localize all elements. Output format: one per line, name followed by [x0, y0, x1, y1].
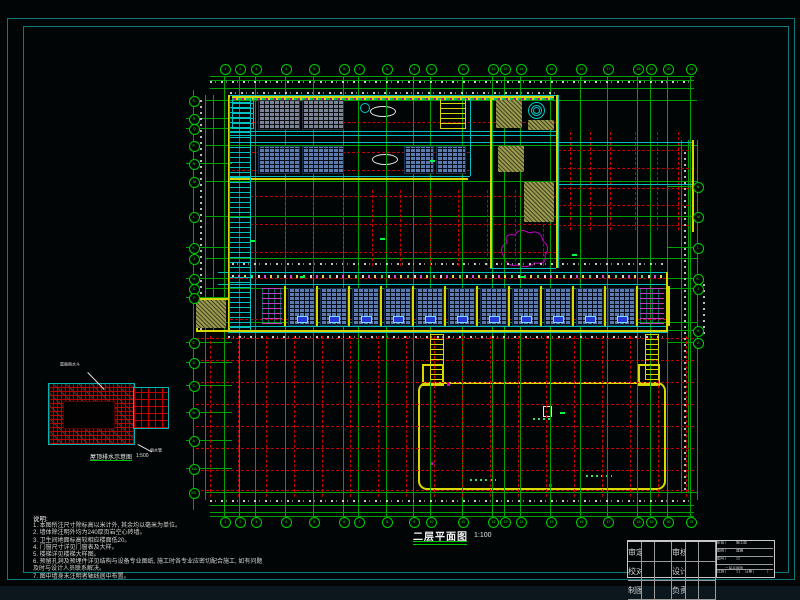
grid-axis-bubble: N — [189, 159, 200, 170]
layout-grid-red — [196, 338, 694, 339]
wall-line — [232, 96, 554, 98]
window-line — [230, 142, 694, 143]
annotation-mark — [560, 412, 565, 414]
partition-wall — [444, 286, 446, 326]
drawing-title-scale: 1:100 — [474, 532, 492, 539]
grid-axis-bubble: 10 — [426, 517, 437, 528]
grid-axis-bubble: 18 — [633, 64, 644, 75]
grid-axis-bubble: 8 — [382, 64, 393, 75]
grid-axis-bubble: 21 — [686, 64, 697, 75]
partition-wall — [572, 286, 574, 326]
drain-symbol-icon — [360, 103, 370, 113]
window-line — [558, 95, 559, 268]
axis-label: 9 — [413, 67, 415, 71]
stairwell — [440, 99, 466, 129]
grid-axis-bubble: 6 — [339, 64, 350, 75]
axis-label: 18 — [636, 67, 640, 71]
layout-grid-red — [196, 490, 694, 491]
axis-label: 21 — [689, 67, 693, 71]
field-spacer — [655, 561, 672, 581]
layout-grid-red — [372, 190, 373, 266]
axis-label: 13 — [503, 520, 507, 524]
podium — [521, 316, 532, 323]
field-value — [642, 561, 655, 581]
grid-axis-bubble: 13 — [500, 517, 511, 528]
axis-label: 5 — [313, 67, 315, 71]
dimension-line — [213, 95, 214, 330]
classroom — [512, 288, 540, 326]
axis-label: 1 — [224, 520, 226, 524]
axis-label: G — [697, 341, 700, 345]
axis-label: G — [193, 287, 196, 291]
field-label: 图别 — [717, 549, 726, 552]
classroom — [288, 288, 316, 326]
axis-label: 16 — [579, 67, 583, 71]
grid-axis-bubble: J — [189, 254, 200, 265]
axis-label: 10 — [429, 67, 433, 71]
axis-label: J — [697, 287, 699, 291]
side-wing-windows — [229, 98, 251, 328]
field-spacer — [699, 542, 716, 562]
note-line: 及时与设计人员联系解决。 — [33, 566, 262, 573]
layout-grid-red — [250, 252, 556, 253]
furnished-room — [196, 300, 226, 328]
podium — [617, 316, 628, 323]
annotation-mark — [380, 238, 385, 240]
partition-wall — [284, 286, 286, 326]
classroom — [384, 288, 412, 326]
grid-axis-bubble: N — [693, 182, 704, 193]
grid-axis-bubble: 4 — [281, 64, 292, 75]
axis-label: 3 — [255, 67, 257, 71]
window-line — [230, 135, 558, 136]
podium — [425, 316, 436, 323]
layout-grid-red — [196, 470, 694, 471]
layout-grid-red — [400, 190, 401, 266]
field-label: 图号 — [717, 557, 726, 560]
podium — [361, 316, 372, 323]
axis-label: 6 — [343, 67, 345, 71]
stairwell — [262, 288, 282, 324]
axis-label: 5 — [313, 520, 315, 524]
layout-grid-red — [343, 190, 344, 266]
axis-label: M — [696, 215, 699, 219]
grid-axis-bubble: L — [189, 212, 200, 223]
drawing-title-underline — [413, 544, 467, 545]
field-label: 负责 — [672, 580, 686, 600]
layout-grid-red — [196, 426, 694, 427]
table-oval — [370, 106, 396, 117]
classroom — [352, 288, 380, 326]
axis-label: 14 — [519, 67, 523, 71]
layout-grid-red — [250, 224, 556, 225]
grid-axis-bubble: 18 — [633, 517, 644, 528]
grid-axis-bubble: 15 — [546, 64, 557, 75]
layout-grid-red — [590, 132, 591, 230]
classroom — [544, 288, 572, 326]
axis-label: E — [193, 341, 195, 345]
grid-axis-bubble: 7 — [354, 517, 365, 528]
link-bridge — [430, 334, 444, 380]
grid-line-vertical — [224, 76, 225, 516]
grid-axis-bubble: 10 — [426, 64, 437, 75]
grid-line-horizontal — [205, 258, 697, 259]
field-label: 校对 — [628, 561, 642, 581]
table-oval — [372, 154, 398, 165]
grid-axis-bubble: 11 — [458, 64, 469, 75]
window-line — [558, 184, 694, 185]
axis-line-right — [697, 140, 698, 500]
layout-grid-red — [250, 196, 556, 197]
dimension-text — [232, 263, 664, 265]
axis-label: 19 — [649, 67, 653, 71]
field-label: 审核 — [672, 542, 686, 562]
layout-grid-red — [635, 132, 636, 230]
axis-label: 2 — [239, 67, 241, 71]
partition-wall — [476, 286, 478, 326]
annotation-mark — [430, 160, 435, 162]
grid-axis-bubble: 1 — [220, 517, 231, 528]
key-plan-note-bottom: 雨水管 — [150, 448, 162, 453]
axis-label: 1 — [224, 67, 226, 71]
layout-grid-red — [313, 190, 314, 266]
layout-grid-red — [678, 132, 679, 230]
grid-axis-bubble: K — [189, 243, 200, 254]
classroom — [302, 146, 344, 174]
field-value — [686, 580, 699, 600]
axis-label: 6 — [343, 520, 345, 524]
axis-label: C — [193, 384, 196, 388]
dimension-line — [210, 88, 694, 89]
grid-axis-bubble: 8 — [382, 517, 393, 528]
grid-axis-bubble: 12 — [488, 64, 499, 75]
layout-grid-red — [610, 132, 611, 230]
grid-axis-bubble: F — [189, 293, 200, 304]
layout-grid-red — [487, 190, 488, 266]
axis-label: 17 — [606, 67, 610, 71]
axis-label: 20 — [666, 520, 670, 524]
axis-label: 8 — [386, 520, 388, 524]
title-block-left: 建 ××市建筑设计研究院有限公司 审定审核校对设计制图负责 — [628, 541, 717, 577]
grid-axis-bubble: 1 — [220, 64, 231, 75]
layout-grid-red — [558, 225, 694, 226]
partition-wall — [348, 286, 350, 326]
magenta-marker — [447, 383, 450, 386]
layout-grid-red — [430, 190, 431, 266]
lecture-room — [258, 100, 300, 130]
grid-axis-bubble: 14 — [516, 517, 527, 528]
signature-grid: 审定审核校对设计制图负责 — [628, 542, 716, 599]
grid-axis-bubble: 11 — [458, 517, 469, 528]
dimension-text-vertical — [200, 100, 202, 330]
dimension-text — [230, 92, 560, 94]
axis-label: H — [697, 329, 700, 333]
axis-label: 7 — [358, 520, 360, 524]
stairwell — [640, 288, 664, 324]
axis-label: 13 — [503, 67, 507, 71]
podium — [297, 316, 308, 323]
drawing-title-underline — [413, 541, 467, 542]
podium — [585, 316, 596, 323]
furnished-room — [496, 100, 522, 128]
field-label: 设计 — [672, 561, 686, 581]
spiral-stair-icon — [533, 107, 540, 114]
key-plan-scale: 1:500 — [136, 453, 149, 459]
partition-wall — [668, 286, 670, 326]
grid-axis-bubble: 15 — [546, 517, 557, 528]
field-value: 建施 — [736, 549, 753, 552]
axis-label: 15 — [549, 67, 553, 71]
axis-label: D — [193, 361, 196, 365]
axis-label: L — [697, 246, 699, 250]
grid-axis-bubble: 6 — [339, 517, 350, 528]
key-plan-note-top: 屋面雨水斗 — [60, 362, 80, 367]
classroom — [480, 288, 508, 326]
grid-axis-bubble: 2 — [235, 517, 246, 528]
field-value: 12 — [736, 557, 753, 560]
partition-wall — [604, 286, 606, 326]
axis-label: 12 — [491, 67, 495, 71]
grid-axis-bubble: 16 — [576, 517, 587, 528]
grid-axis-bubble: 3 — [251, 64, 262, 75]
axis-label: R — [193, 117, 196, 121]
grid-axis-bubble: C — [189, 381, 200, 392]
grid-axis-bubble: M — [189, 177, 200, 188]
grid-axis-bubble: A — [189, 436, 200, 447]
window-line — [228, 326, 668, 327]
axis-label: 16 — [579, 520, 583, 524]
grid-axis-bubble: 19 — [646, 517, 657, 528]
field-value: 施工图 — [736, 541, 753, 544]
date-value — [764, 570, 768, 573]
furnished-room — [528, 120, 554, 130]
link-bridge — [645, 334, 659, 380]
classroom — [608, 288, 636, 326]
grid-axis-bubble: 9 — [409, 517, 420, 528]
podium — [329, 316, 340, 323]
grid-axis-bubble: 20 — [663, 64, 674, 75]
title-block-row: 图别建施 — [717, 549, 773, 557]
grid-axis-bubble: D — [189, 358, 200, 369]
field-value — [642, 580, 655, 600]
key-plan-courtyard — [63, 401, 115, 429]
partition-wall — [412, 286, 414, 326]
field-label: 阶段 — [717, 541, 726, 544]
axis-label: 14 — [519, 520, 523, 524]
axis-label: 1/A — [191, 467, 196, 471]
grid-axis-bubble: H — [189, 274, 200, 285]
annotation-mark — [300, 276, 305, 278]
scale-date-row: 比例 1:100 日期 — [717, 570, 773, 577]
furnished-room — [498, 146, 524, 172]
date-label: 日期 — [745, 570, 754, 573]
plaza-annotation-text — [586, 475, 612, 477]
wall-line — [196, 330, 668, 332]
field-value — [686, 561, 699, 581]
grid-axis-bubble: 2 — [235, 64, 246, 75]
window-line — [470, 96, 471, 176]
layout-grid-red — [570, 132, 571, 230]
annotation-mark — [520, 276, 525, 278]
grid-axis-bubble: J — [693, 284, 704, 295]
axis-label: K — [697, 277, 699, 281]
window-line — [218, 272, 668, 273]
title-block-row: 图号12 — [717, 557, 773, 565]
layout-grid-red — [558, 188, 694, 189]
grid-axis-bubble: L — [693, 243, 704, 254]
grid-axis-bubble: P — [189, 141, 200, 152]
grid-axis-bubble: 17 — [603, 517, 614, 528]
axis-label: 1/0 — [191, 491, 196, 495]
field-label: 制图 — [628, 580, 642, 600]
axis-label: 4 — [285, 520, 287, 524]
grid-line-horizontal — [210, 76, 694, 77]
axis-label: N — [697, 185, 700, 189]
podium — [489, 316, 500, 323]
axis-label: J — [193, 257, 195, 261]
dimension-line — [210, 512, 694, 513]
axis-label: 21 — [689, 520, 693, 524]
note-line: 7. 图中墙身未注明者轴线居中布置。 — [33, 574, 262, 581]
classroom — [258, 146, 300, 174]
key-plan-plaza — [133, 387, 169, 429]
grid-axis-bubble: 1/A — [189, 464, 200, 475]
dimension-line — [210, 505, 694, 506]
axis-label: S — [193, 99, 195, 103]
axis-label: 18 — [636, 520, 640, 524]
axis-label: 11 — [461, 520, 465, 524]
grid-axis-bubble: 21 — [686, 517, 697, 528]
grid-axis-bubble: 9 — [409, 64, 420, 75]
grid-axis-bubble: Q — [189, 124, 200, 135]
annotation-mark — [250, 240, 255, 242]
axis-label: 12 — [491, 520, 495, 524]
layout-grid-red — [196, 404, 694, 405]
axis-label: F — [193, 296, 195, 300]
axis-label: 17 — [606, 520, 610, 524]
axis-label: 3 — [255, 520, 257, 524]
axis-label: Q — [193, 127, 196, 131]
grid-axis-bubble: 19 — [646, 64, 657, 75]
axis-label: 11 — [461, 67, 465, 71]
field-value — [686, 542, 699, 562]
grid-axis-bubble: E — [189, 338, 200, 349]
scale-label: 比例 — [717, 570, 726, 573]
dimension-line — [688, 140, 689, 492]
grid-axis-bubble: 1/0 — [189, 488, 200, 499]
layout-grid-red — [558, 150, 694, 151]
grid-axis-bubble: H — [693, 326, 704, 337]
layout-grid-red — [196, 382, 694, 383]
axis-label: A — [193, 439, 195, 443]
field-spacer — [655, 580, 672, 600]
note-line: 4. 门窗尺寸详见门窗表及大样。 — [33, 545, 262, 552]
title-block: 建 ××市建筑设计研究院有限公司 审定审核校对设计制图负责 阶段施工图图别建施图… — [627, 540, 775, 578]
axis-label: P — [193, 144, 195, 148]
layout-grid-red — [657, 132, 658, 230]
layout-grid-red — [196, 448, 694, 449]
furnished-room — [524, 182, 554, 222]
grid-axis-bubble: 17 — [603, 64, 614, 75]
grid-axis-bubble: 13 — [500, 64, 511, 75]
axis-label: 19 — [649, 520, 653, 524]
layout-grid-red — [196, 360, 694, 361]
classroom — [436, 146, 466, 174]
field-spacer — [699, 580, 716, 600]
lecture-room — [302, 100, 344, 130]
layout-grid-red — [558, 205, 694, 206]
grid-axis-bubble: 5 — [309, 517, 320, 528]
field-label: 审定 — [628, 542, 642, 562]
scale-value: 1:100 — [736, 570, 740, 573]
key-plan-caption-underline — [90, 460, 132, 461]
grid-line-horizontal — [205, 216, 697, 217]
grid-axis-bubble: 14 — [516, 64, 527, 75]
window-line — [490, 268, 556, 269]
grid-axis-bubble: 20 — [663, 517, 674, 528]
layout-grid-red — [558, 168, 694, 169]
axis-label: B — [193, 411, 195, 415]
annotation-mark — [572, 254, 577, 256]
axis-label: 2 — [239, 520, 241, 524]
axis-label: 7 — [358, 67, 360, 71]
layout-grid-red — [515, 190, 516, 266]
dimension-line — [681, 140, 682, 492]
partition-wall — [636, 286, 638, 326]
partition-wall — [316, 286, 318, 326]
title-block-right: 阶段施工图图别建施图号12 ××小学教学楼 二层平面图 比例 1:100 日期 — [717, 541, 773, 577]
grid-axis-bubble: 5 — [309, 64, 320, 75]
layout-grid-red — [230, 278, 666, 279]
dimension-text — [210, 81, 694, 83]
axis-label: 9 — [413, 520, 415, 524]
podium — [553, 316, 564, 323]
grid-line-horizontal — [205, 492, 697, 493]
dimension-text — [210, 500, 694, 502]
grid-axis-bubble: 4 — [281, 517, 292, 528]
grid-axis-bubble: 3 — [251, 517, 262, 528]
partition-wall — [380, 286, 382, 326]
classroom — [576, 288, 604, 326]
window-line — [230, 176, 470, 177]
wall-line — [230, 178, 468, 180]
field-spacer — [655, 542, 672, 562]
wall-line — [556, 95, 558, 268]
axis-label: L — [193, 215, 195, 219]
window-line — [218, 284, 668, 285]
wall-line — [490, 96, 492, 268]
plaza-outline — [418, 382, 666, 490]
partition-wall — [508, 286, 510, 326]
classroom — [416, 288, 444, 326]
layout-grid-red — [458, 190, 459, 266]
title-block-row: 阶段施工图 — [717, 541, 773, 549]
grid-axis-bubble: B — [189, 408, 200, 419]
grid-axis-bubble: 16 — [576, 64, 587, 75]
grid-axis-bubble: 7 — [354, 64, 365, 75]
podium — [457, 316, 468, 323]
grid-axis-bubble: 12 — [488, 517, 499, 528]
grid-axis-bubble: R — [189, 114, 200, 125]
grid-axis-bubble: G — [693, 338, 704, 349]
axis-label: N — [193, 162, 196, 166]
note-line: 2. 墙体除注明外均为240厚页岩空心砖墙。 — [33, 530, 262, 537]
grid-axis-bubble: M — [693, 212, 704, 223]
axis-label: K — [193, 246, 195, 250]
field-spacer — [699, 561, 716, 581]
classroom — [448, 288, 476, 326]
layout-grid-red — [285, 190, 286, 266]
